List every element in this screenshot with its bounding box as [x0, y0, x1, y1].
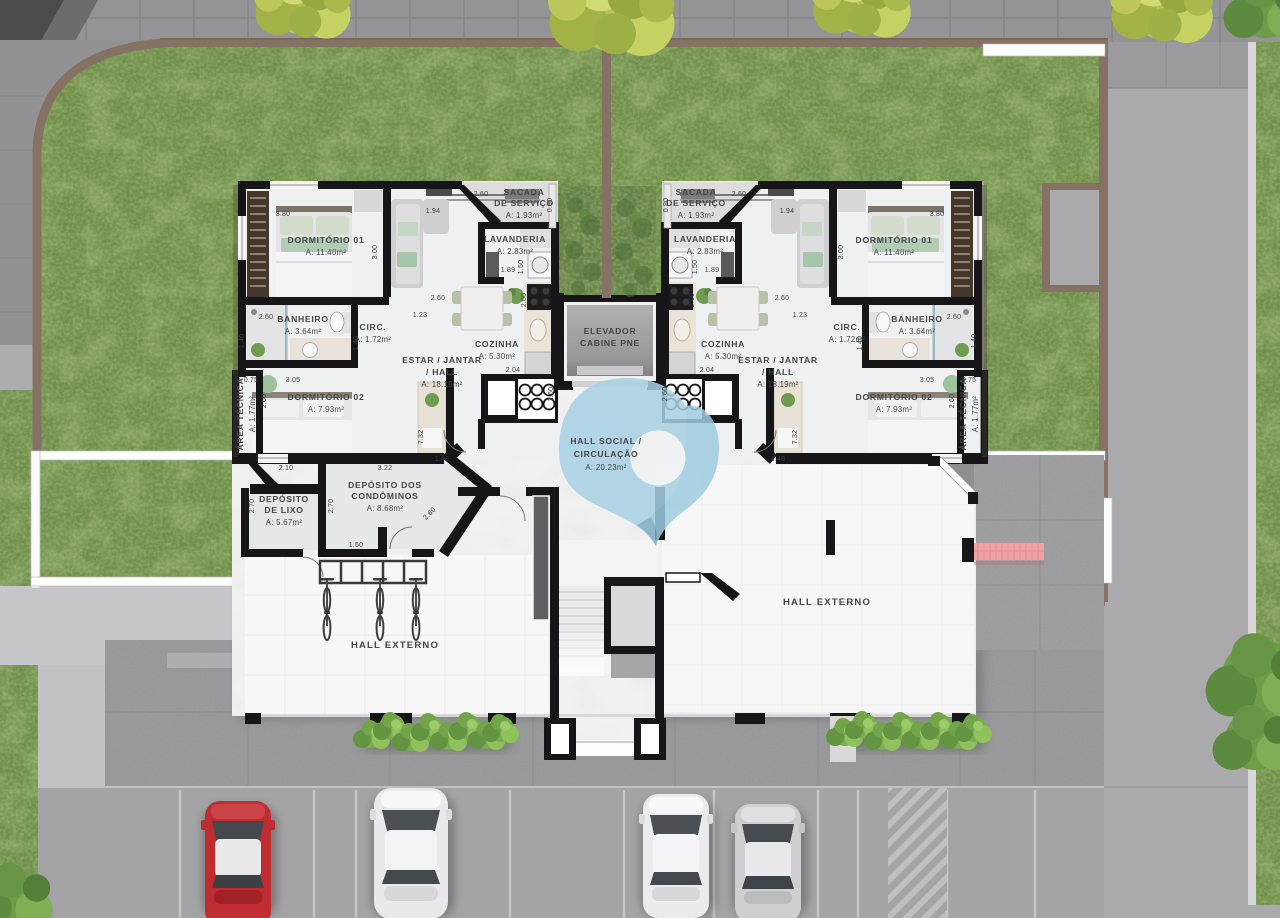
svg-text:DORMITÓRIO 02: DORMITÓRIO 02	[288, 391, 365, 402]
svg-text:3.00: 3.00	[372, 245, 379, 259]
svg-text:2.60: 2.60	[259, 314, 273, 321]
svg-text:A: 2.83m²: A: 2.83m²	[497, 247, 534, 256]
svg-text:2.60: 2.60	[689, 293, 696, 307]
svg-text:0.90: 0.90	[547, 198, 554, 212]
svg-text:A: 20.23m²: A: 20.23m²	[585, 463, 626, 472]
svg-text:1.50: 1.50	[692, 260, 699, 274]
svg-text:DE SERVIÇO: DE SERVIÇO	[666, 198, 726, 208]
svg-text:1.23: 1.23	[413, 312, 427, 319]
svg-text:1.48: 1.48	[435, 456, 449, 463]
svg-text:ÁREA TÉCNICA: ÁREA TÉCNICA	[235, 377, 245, 450]
svg-text:A: 18.19m²: A: 18.19m²	[421, 380, 462, 389]
svg-text:A: 1.93m²: A: 1.93m²	[678, 211, 715, 220]
svg-text:A: 8.68m²: A: 8.68m²	[367, 504, 404, 513]
svg-text:BANHEIRO: BANHEIRO	[891, 314, 942, 324]
svg-text:ESTAR / JANTAR: ESTAR / JANTAR	[402, 355, 482, 365]
svg-text:A: 2.83m²: A: 2.83m²	[687, 247, 724, 256]
svg-text:A: 1.77m²: A: 1.77m²	[971, 396, 980, 433]
svg-text:7.32: 7.32	[792, 430, 799, 444]
svg-text:3.05: 3.05	[920, 377, 934, 384]
svg-text:ESTAR / JANTAR: ESTAR / JANTAR	[738, 355, 818, 365]
svg-text:1.50: 1.50	[349, 542, 363, 549]
svg-text:2.60: 2.60	[431, 295, 445, 302]
svg-text:1.50: 1.50	[518, 260, 525, 274]
svg-text:2.60: 2.60	[261, 394, 268, 408]
svg-text:ÁREA TÉCNICA: ÁREA TÉCNICA	[958, 377, 968, 450]
svg-text:A: 1.93m²: A: 1.93m²	[506, 211, 543, 220]
svg-text:2.70: 2.70	[249, 499, 256, 513]
svg-text:HALL EXTERNO: HALL EXTERNO	[351, 640, 439, 651]
svg-text:2.10: 2.10	[279, 465, 293, 472]
svg-text:1.48: 1.48	[771, 456, 785, 463]
svg-text:A: 5.30m²: A: 5.30m²	[479, 352, 516, 361]
svg-text:0.75: 0.75	[244, 377, 258, 384]
svg-text:HALL EXTERNO: HALL EXTERNO	[783, 597, 871, 608]
svg-text:SACADA: SACADA	[676, 187, 717, 197]
svg-text:/ HALL: / HALL	[762, 367, 794, 377]
svg-text:2.60: 2.60	[662, 387, 669, 401]
svg-text:7.32: 7.32	[418, 430, 425, 444]
svg-text:SACADA: SACADA	[504, 187, 545, 197]
svg-text:2.04: 2.04	[700, 367, 714, 374]
svg-text:1.94: 1.94	[780, 208, 794, 215]
svg-text:COZINHA: COZINHA	[701, 339, 745, 349]
svg-text:0.75: 0.75	[962, 377, 976, 384]
svg-text:A: 3.64m²: A: 3.64m²	[899, 327, 936, 336]
svg-text:COZINHA: COZINHA	[475, 339, 519, 349]
svg-text:2.60: 2.60	[474, 191, 488, 198]
svg-text:DEPÓSITO: DEPÓSITO	[259, 493, 309, 504]
svg-text:CIRC.: CIRC.	[834, 322, 861, 332]
svg-text:CIRCULAÇÃO: CIRCULAÇÃO	[574, 449, 639, 459]
svg-text:3.05: 3.05	[286, 377, 300, 384]
svg-text:A: 5.30m²: A: 5.30m²	[705, 352, 742, 361]
svg-text:3.00: 3.00	[838, 245, 845, 259]
svg-text:DE LIXO: DE LIXO	[264, 505, 303, 515]
svg-text:DORMITÓRIO 02: DORMITÓRIO 02	[856, 391, 933, 402]
svg-text:CABINE PNE: CABINE PNE	[580, 338, 640, 348]
svg-text:2.60: 2.60	[949, 394, 956, 408]
svg-text:1.89: 1.89	[705, 267, 719, 274]
svg-text:2.60: 2.60	[732, 191, 746, 198]
svg-text:CONDÔMINOS: CONDÔMINOS	[351, 490, 418, 501]
svg-text:A: 7.93m²: A: 7.93m²	[876, 405, 913, 414]
svg-text:A: 11.40m²: A: 11.40m²	[306, 248, 347, 257]
svg-text:1.89: 1.89	[501, 267, 515, 274]
svg-text:2.60: 2.60	[775, 295, 789, 302]
svg-text:HALL SOCIAL /: HALL SOCIAL /	[570, 436, 641, 446]
svg-text:A: 3.64m²: A: 3.64m²	[285, 327, 322, 336]
svg-text:A: 7.93m²: A: 7.93m²	[308, 405, 345, 414]
svg-text:1.94: 1.94	[426, 208, 440, 215]
svg-text:1.40: 1.40	[239, 334, 246, 348]
svg-text:DORMITÓRIO 01: DORMITÓRIO 01	[288, 234, 365, 245]
svg-text:2.04: 2.04	[506, 367, 520, 374]
svg-text:A: 18.19m²: A: 18.19m²	[757, 380, 798, 389]
svg-text:A: 11.40m²: A: 11.40m²	[874, 248, 915, 257]
svg-text:ELEVADOR: ELEVADOR	[584, 326, 637, 336]
svg-text:LAVANDERIA: LAVANDERIA	[674, 234, 736, 244]
svg-text:A: 1.72m²: A: 1.72m²	[355, 335, 392, 344]
svg-text:DEPÓSITO DOS: DEPÓSITO DOS	[348, 479, 422, 490]
svg-text:A: 1.77m²: A: 1.77m²	[248, 396, 257, 433]
svg-text:/ HALL: / HALL	[426, 367, 458, 377]
svg-text:BANHEIRO: BANHEIRO	[277, 314, 328, 324]
svg-text:1.40: 1.40	[857, 336, 864, 350]
svg-text:1.23: 1.23	[793, 312, 807, 319]
svg-text:2.70: 2.70	[328, 499, 335, 513]
svg-text:3.80: 3.80	[276, 211, 290, 218]
svg-text:DE SERVIÇO: DE SERVIÇO	[494, 198, 554, 208]
svg-text:2.60: 2.60	[947, 314, 961, 321]
svg-text:3.22: 3.22	[378, 465, 392, 472]
svg-text:LAVANDERIA: LAVANDERIA	[484, 234, 546, 244]
svg-text:A: 5.67m²: A: 5.67m²	[266, 518, 303, 527]
svg-text:0.90: 0.90	[663, 198, 670, 212]
svg-text:2.60: 2.60	[548, 387, 555, 401]
svg-text:2.60: 2.60	[521, 293, 528, 307]
svg-text:3.80: 3.80	[930, 211, 944, 218]
svg-text:1.40: 1.40	[353, 336, 360, 350]
svg-text:CIRC.: CIRC.	[360, 322, 387, 332]
svg-text:DORMITÓRIO 01: DORMITÓRIO 01	[856, 234, 933, 245]
svg-text:1.40: 1.40	[971, 334, 978, 348]
